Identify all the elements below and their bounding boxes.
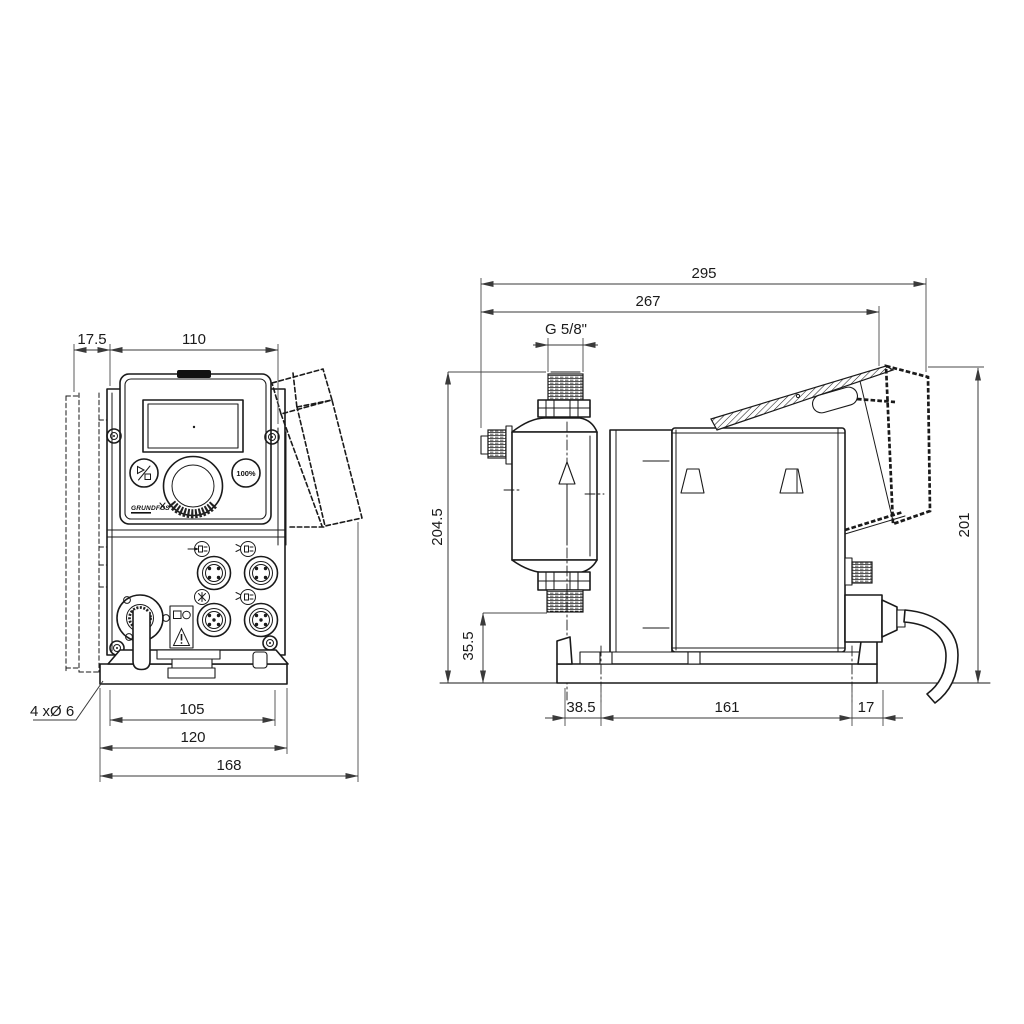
top-thread xyxy=(548,374,583,401)
control-panel: 100% GRUNDFOS xyxy=(107,370,279,524)
dim-overall-depth: 295 xyxy=(691,265,716,282)
motor-housing xyxy=(672,428,845,652)
technical-drawing-canvas: 100% GRUNDFOS xyxy=(0,0,1024,1024)
pump-mid-section xyxy=(610,430,672,655)
dim-base-width: 120 xyxy=(180,729,205,746)
dim-overall-width: 168 xyxy=(216,757,241,774)
power-cable-side xyxy=(904,610,958,703)
hood-lid-edge xyxy=(711,366,893,430)
capacity-button-label: 100% xyxy=(236,469,256,478)
inlet-connector xyxy=(481,436,488,454)
mounting-holes-label: 4 xØ 6 xyxy=(30,703,74,720)
display-cursor-dot xyxy=(193,426,195,428)
m12-connector-icon[interactable] xyxy=(245,604,278,637)
dim-wall-offset: 17.5 xyxy=(77,331,106,348)
dim-depth-no-cable: 267 xyxy=(635,293,660,310)
dim-thread: G 5/8" xyxy=(545,321,587,338)
drawing-page: 100% GRUNDFOS xyxy=(0,0,1024,1024)
rear-stud xyxy=(852,562,872,583)
wall-plate-hidden-lines xyxy=(66,393,108,672)
dim-outlet-height: 35.5 xyxy=(460,631,477,660)
cable-gland-block xyxy=(845,595,882,642)
dim-panel-width: 110 xyxy=(182,331,206,348)
click-wheel[interactable] xyxy=(164,457,223,516)
front-view: 100% GRUNDFOS xyxy=(30,331,362,782)
dim-overall-height: 204.5 xyxy=(429,508,446,546)
dim-hole-spacing: 105 xyxy=(179,701,204,718)
m12-connector-icon[interactable] xyxy=(198,604,231,637)
hood-side-wall xyxy=(886,366,930,524)
power-cable-front xyxy=(133,610,150,670)
warning-label xyxy=(170,606,193,648)
mounting-base-front xyxy=(100,650,288,684)
dim-hole-to-edge: 17 xyxy=(858,699,875,716)
side-view: 295 267 G 5/8" 204.5 35.5 201 38.5 161 xyxy=(429,265,990,726)
dim-hood-height: 201 xyxy=(956,512,973,537)
outlet-thread xyxy=(547,590,583,612)
dim-base-hole-spacing: 161 xyxy=(714,699,739,716)
dosing-head xyxy=(481,372,604,700)
dim-valve-to-hole: 38.5 xyxy=(566,699,595,716)
panel-top-clip xyxy=(177,370,211,378)
